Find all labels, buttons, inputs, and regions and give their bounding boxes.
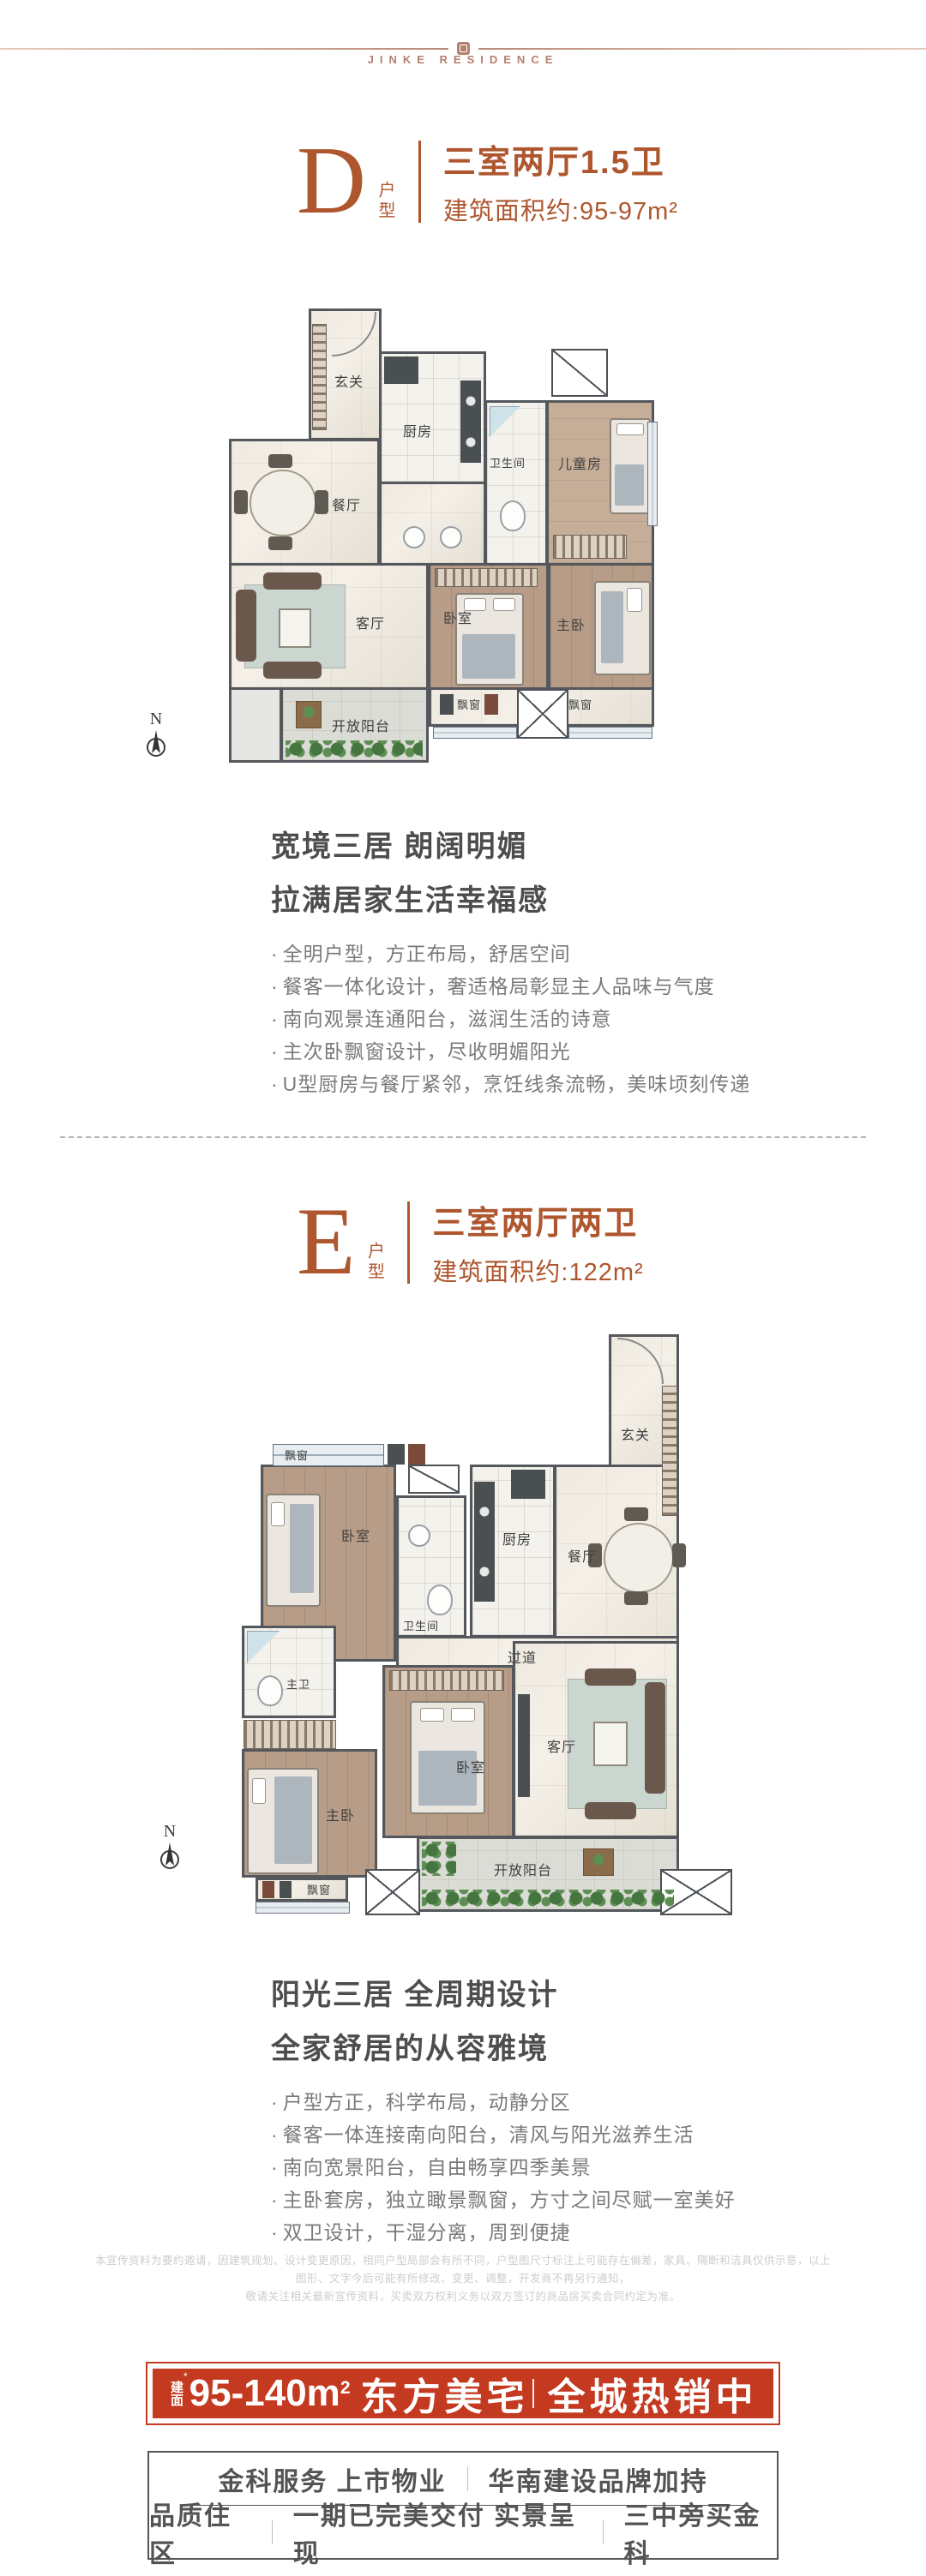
promo-banner: 建面 * 95-140m2 东方美宅 全城热销中 bbox=[153, 2369, 773, 2418]
room-label-master: 主卧 bbox=[556, 614, 586, 634]
sink bbox=[403, 526, 425, 548]
compass-needle-icon bbox=[159, 1842, 181, 1871]
footer-cell: 三中旁买金科 bbox=[624, 2495, 777, 2570]
bullet-item: 户型方正，科学布局，动静分区 bbox=[271, 2086, 803, 2118]
bullet-item: 主次卧飘窗设计，尽收明媚阳光 bbox=[271, 1035, 803, 1068]
sofa bbox=[645, 1682, 665, 1794]
art-frame bbox=[408, 1444, 425, 1465]
blanket bbox=[601, 591, 623, 663]
pillow bbox=[451, 1708, 475, 1722]
room-label-master: 主卧 bbox=[326, 1804, 355, 1824]
pillow bbox=[420, 1708, 444, 1722]
bed bbox=[247, 1768, 319, 1874]
sofa bbox=[585, 1668, 636, 1686]
plants bbox=[422, 1890, 674, 1908]
footer-cell: 华南建设品牌加持 bbox=[489, 2460, 708, 2498]
disclaimer: 本宣传资料为要约邀请，因建筑规划、设计变更原因，相同户型局部会有所不同，户型图尺… bbox=[94, 2252, 832, 2306]
header-line-left bbox=[0, 48, 448, 50]
toilet bbox=[427, 1585, 453, 1615]
bed bbox=[594, 581, 651, 675]
blanket bbox=[462, 634, 515, 679]
sink bbox=[440, 526, 462, 548]
footer-separator bbox=[467, 2467, 468, 2491]
bullet-item: 双卫设计，干湿分离，周到便捷 bbox=[271, 2216, 803, 2249]
toilet bbox=[500, 500, 526, 531]
bay-window bbox=[647, 422, 658, 526]
art-frame bbox=[388, 1444, 405, 1465]
bed bbox=[266, 1494, 321, 1607]
floor-plan-e: 玄关 飘窗 卧室 卫生间 厨房 餐厅 过道 主卫 bbox=[240, 1334, 733, 1917]
floor-plan-d: 玄关 厨房 卫生间 儿童房 餐厅 客厅 bbox=[227, 302, 660, 766]
footer-cell: 金科服务 上市物业 bbox=[218, 2460, 446, 2498]
coffee-table bbox=[593, 1722, 628, 1766]
room-label-bedroom: 卧室 bbox=[443, 607, 472, 627]
room-label-bath: 卫生间 bbox=[403, 1617, 439, 1633]
unit-d-bullet-list: 全明户型，方正布局，舒居空间 餐客一体化设计，奢适格局彰显主人品味与气度 南向观… bbox=[271, 938, 803, 1100]
banner-status: 全城热销中 bbox=[548, 2366, 758, 2421]
unit-e-suffix: 户型 bbox=[362, 1242, 387, 1283]
bed bbox=[610, 418, 651, 514]
promo-banner-frame: 建面 * 95-140m2 东方美宅 全城热销中 bbox=[146, 2362, 780, 2425]
room-label-balcony: 开放阳台 bbox=[332, 715, 390, 735]
unit-e-header: E 户型 三室两厅两卫 建筑面积约:122m² bbox=[297, 1196, 644, 1288]
blanket bbox=[274, 1776, 312, 1864]
unit-d-heading-1: 宽境三居 朗阔明媚 bbox=[271, 823, 803, 865]
room-label-bedroom2: 卧室 bbox=[341, 1525, 370, 1545]
room-label-bedroom: 卧室 bbox=[456, 1756, 485, 1776]
unit-e-heading-1: 阳光三居 全周期设计 bbox=[271, 1971, 803, 2013]
pillow bbox=[627, 588, 642, 612]
unit-d-header: D 户型 三室两厅1.5卫 建筑面积约:95-97m² bbox=[297, 135, 678, 227]
room-label-balcony: 开放阳台 bbox=[494, 1859, 552, 1879]
sofa bbox=[585, 1802, 636, 1819]
footer-separator bbox=[603, 2520, 604, 2544]
blanket bbox=[615, 464, 644, 506]
vestibule bbox=[229, 687, 282, 763]
coffee-table bbox=[279, 608, 311, 648]
unit-e-area: 建筑面积约:122m² bbox=[432, 1252, 643, 1288]
room-label-bay-bottom: 飘窗 bbox=[307, 1881, 331, 1897]
unit-e-heading-2: 全家舒居的从容雅境 bbox=[271, 2025, 803, 2067]
bullet-item: 全明户型，方正布局，舒居空间 bbox=[271, 938, 803, 970]
footer-cell: 一期已完美交付 实景呈现 bbox=[293, 2495, 582, 2570]
unit-d-divider bbox=[418, 141, 421, 223]
compass-e: N bbox=[153, 1822, 187, 1875]
dining-table bbox=[250, 470, 316, 536]
wardrobe-hatch bbox=[553, 535, 627, 559]
hallway bbox=[379, 482, 486, 566]
bullet-item: U型厨房与餐厅紧邻，烹饪线条流畅，美味顷刻传递 bbox=[271, 1068, 803, 1100]
brand-name: JINKE RESIDENCE bbox=[0, 53, 926, 66]
bullet-item: 主卧套房，独立瞰景飘窗，方寸之间尽赋一室美好 bbox=[271, 2184, 803, 2216]
rug-icon bbox=[484, 694, 498, 715]
banner-range-sup: 2 bbox=[340, 2378, 351, 2398]
bay-window bbox=[256, 1902, 350, 1914]
banner-mark: * bbox=[183, 2370, 188, 2382]
unit-e-titles: 三室两厅两卫 建筑面积约:122m² bbox=[432, 1196, 643, 1288]
chair bbox=[624, 1591, 648, 1605]
wardrobe-hatch bbox=[244, 1720, 336, 1749]
bullet-item: 餐客一体化设计，奢适格局彰显主人品味与气度 bbox=[271, 970, 803, 1003]
footer-separator bbox=[272, 2520, 273, 2544]
rug-icon bbox=[262, 1881, 274, 1898]
banner-area-range: 95-140m2 bbox=[189, 2372, 351, 2415]
section-divider bbox=[60, 1136, 866, 1138]
stove bbox=[474, 1482, 495, 1602]
unit-d-description: 宽境三居 朗阔明媚 拉满居家生活幸福感 全明户型，方正布局，舒居空间 餐客一体化… bbox=[271, 823, 803, 1100]
footer-cell: 品质住区 bbox=[149, 2495, 251, 2570]
bay-window bbox=[433, 727, 517, 739]
room-label-bay-top: 飘窗 bbox=[285, 1447, 309, 1463]
unit-d-suffix: 户型 bbox=[373, 181, 398, 222]
footer-row-2: 品质住区 一期已完美交付 实景呈现 三中旁买金科 bbox=[149, 2506, 777, 2558]
header-line-right bbox=[478, 48, 926, 50]
room-label-dining: 餐厅 bbox=[568, 1545, 597, 1566]
fridge bbox=[384, 356, 418, 384]
disclaimer-line-1: 本宣传资料为要约邀请，因建筑规划、设计变更原因，相同户型局部会有所不同，户型图尺… bbox=[94, 2252, 832, 2288]
ac-platform bbox=[551, 349, 608, 397]
room-label-kitchen: 厨房 bbox=[502, 1528, 532, 1549]
room-label-bath: 卫生间 bbox=[490, 454, 526, 470]
blanket bbox=[290, 1504, 314, 1593]
unit-d-letter: D bbox=[297, 143, 366, 220]
footer-box: 金科服务 上市物业 华南建设品牌加持 品质住区 一期已完美交付 实景呈现 三中旁… bbox=[147, 2451, 779, 2560]
chair bbox=[234, 490, 248, 514]
banner-area-label: 建面 bbox=[169, 2381, 183, 2406]
bullet-item: 餐客一体连接南向阳台，清风与阳光滋养生活 bbox=[271, 2118, 803, 2151]
banner-range-text: 95-140m bbox=[189, 2372, 340, 2414]
unit-e-description: 阳光三居 全周期设计 全家舒居的从容雅境 户型方正，科学布局，动静分区 餐客一体… bbox=[271, 1971, 803, 2249]
elevator-shaft bbox=[365, 1869, 420, 1915]
compass-d: N bbox=[139, 710, 173, 763]
unit-d-heading-2: 拉满居家生活幸福感 bbox=[271, 877, 803, 919]
room-label-entry: 玄关 bbox=[621, 1423, 650, 1444]
room-label-kids: 儿童房 bbox=[558, 452, 602, 473]
unit-d-title: 三室两厅1.5卫 bbox=[443, 135, 678, 183]
rug-icon bbox=[440, 694, 454, 715]
poster-page: JINKE RESIDENCE D 户型 三室两厅1.5卫 建筑面积约:95-9… bbox=[0, 0, 926, 2576]
room-label-bay2: 飘窗 bbox=[568, 696, 592, 712]
pillow bbox=[271, 1502, 285, 1526]
banner-divider bbox=[532, 2379, 534, 2408]
bullet-item: 南向观景连通阳台，滋润生活的诗意 bbox=[271, 1003, 803, 1035]
planter bbox=[583, 1848, 614, 1876]
unit-e-bullet-list: 户型方正，科学布局，动静分区 餐客一体连接南向阳台，清风与阳光滋养生活 南向宽景… bbox=[271, 2086, 803, 2249]
wardrobe-hatch bbox=[435, 568, 538, 587]
wardrobe-hatch bbox=[662, 1386, 677, 1516]
compass-n-label: N bbox=[139, 710, 173, 729]
room-label-entry: 玄关 bbox=[334, 370, 364, 391]
unit-d-titles: 三室两厅1.5卫 建筑面积约:95-97m² bbox=[443, 135, 678, 227]
banner-product-name: 东方美宅 bbox=[361, 2366, 529, 2421]
chair bbox=[672, 1543, 686, 1567]
room-label-dining: 餐厅 bbox=[332, 494, 361, 514]
chair bbox=[624, 1507, 648, 1521]
plants bbox=[286, 740, 423, 758]
chair bbox=[315, 490, 328, 514]
wardrobe-hatch bbox=[312, 324, 327, 430]
room-label-corridor: 过道 bbox=[508, 1646, 537, 1667]
room-label-master-bath: 主卫 bbox=[286, 1675, 310, 1692]
planter bbox=[296, 701, 322, 728]
pillow bbox=[252, 1778, 266, 1804]
elevator-shaft bbox=[517, 689, 568, 739]
unit-e-letter: E bbox=[297, 1204, 355, 1281]
wardrobe-hatch bbox=[389, 1670, 504, 1691]
room-label-bay1: 飘窗 bbox=[457, 696, 481, 712]
sink bbox=[408, 1525, 430, 1547]
pillow bbox=[616, 423, 644, 435]
tv-cabinet bbox=[518, 1694, 530, 1797]
sofa bbox=[236, 590, 256, 662]
toilet bbox=[257, 1675, 283, 1706]
sofa bbox=[263, 662, 322, 679]
compass-needle-icon bbox=[145, 729, 167, 758]
compass-n-label: N bbox=[153, 1822, 187, 1842]
chair bbox=[268, 536, 292, 550]
room-label-living: 客厅 bbox=[356, 612, 385, 632]
sofa bbox=[263, 572, 322, 590]
bullet-item: 南向宽景阳台，自由畅享四季美景 bbox=[271, 2151, 803, 2184]
plants bbox=[422, 1842, 456, 1876]
rug-icon bbox=[280, 1881, 292, 1898]
pillow bbox=[493, 598, 515, 611]
ac-platform bbox=[408, 1465, 460, 1494]
dining-table bbox=[604, 1523, 674, 1593]
bay-window bbox=[568, 727, 652, 739]
unit-e-divider bbox=[407, 1201, 410, 1284]
unit-e-title: 三室两厅两卫 bbox=[432, 1196, 643, 1243]
chair bbox=[268, 454, 292, 468]
room-label-living: 客厅 bbox=[547, 1735, 576, 1756]
disclaimer-line-2: 敬请关注相关最新宣传资料，买卖双方权利义务以双方签订的商品房买卖合同约定为准。 bbox=[94, 2288, 832, 2306]
unit-d-area: 建筑面积约:95-97m² bbox=[443, 191, 678, 227]
stove bbox=[460, 380, 481, 463]
fridge bbox=[511, 1470, 545, 1499]
room-label-kitchen: 厨房 bbox=[403, 420, 432, 440]
